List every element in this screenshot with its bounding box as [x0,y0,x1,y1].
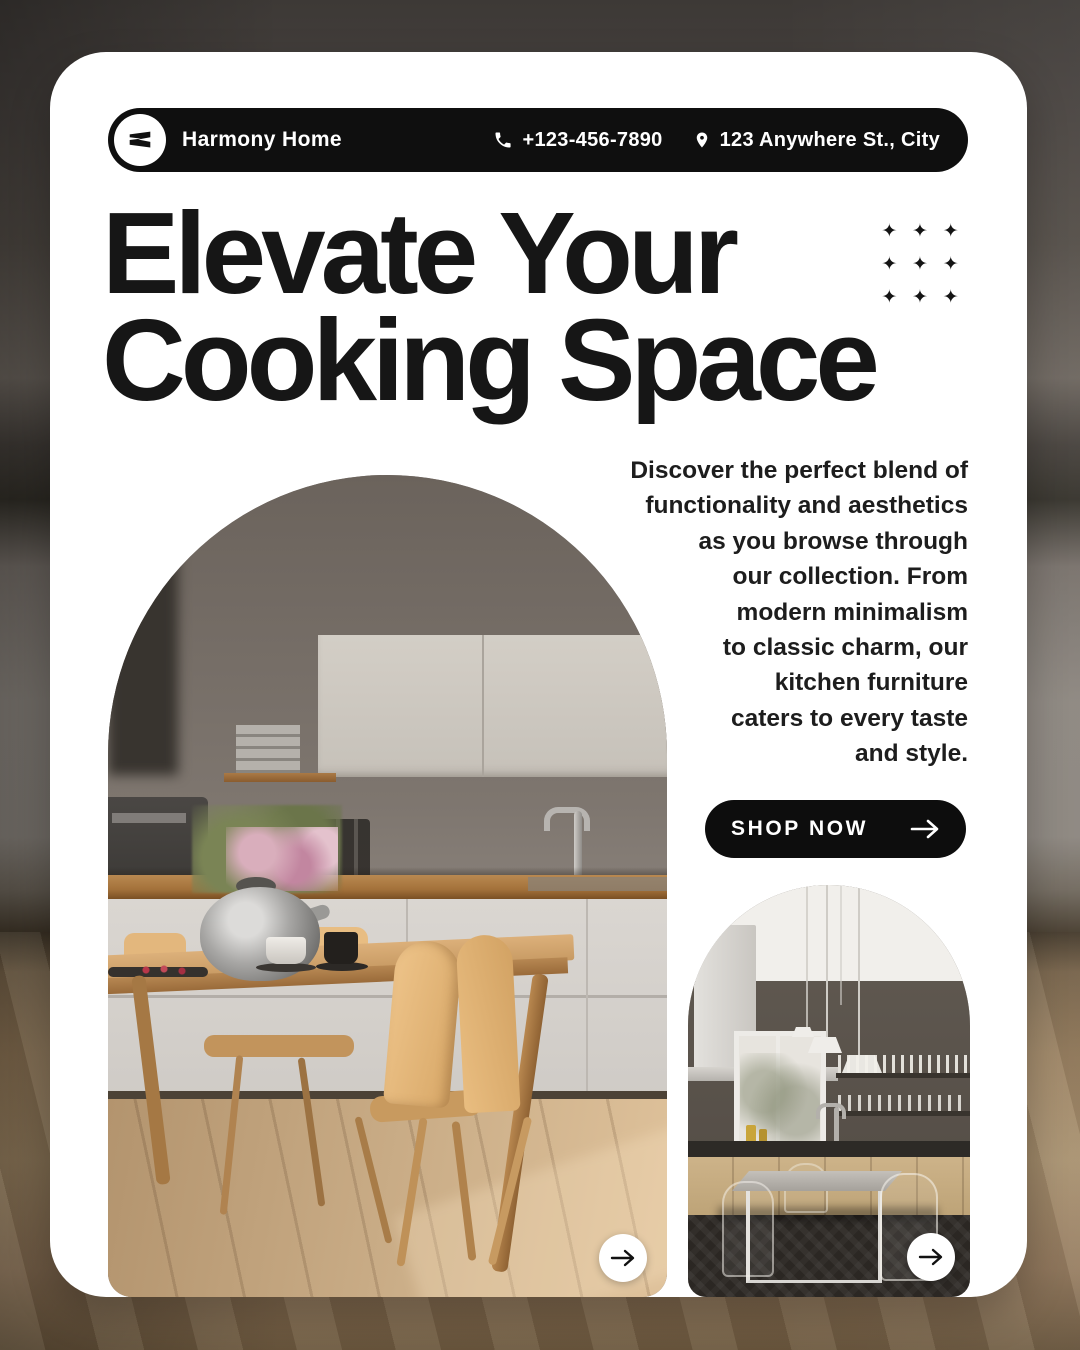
sparkle-icon: ✦ [912,255,928,274]
sparkle-icon: ✦ [943,255,959,274]
phone-icon [493,130,513,150]
photo-cabinet-seam [482,635,484,777]
photo-shelf [836,1111,970,1116]
photo-white-cup [266,937,306,964]
shop-now-label: SHOP NOW [731,817,868,841]
carousel-next-button-right[interactable] [907,1233,955,1281]
photo-coffee-panel [112,813,186,823]
poster-canvas: Harmony Home +123-456-7890 123 Anywhere … [0,0,1080,1350]
shop-now-button[interactable]: SHOP NOW [705,800,966,858]
brand-logo [114,114,166,166]
photo-counter [688,1141,970,1157]
photo-upper-cabinet [318,635,667,777]
address-text: 123 Anywhere St., City [720,129,940,152]
sparkle-icon: ✦ [912,288,928,307]
kitchen-photo-left [108,475,667,1297]
kitchen-photo-right [688,885,970,1297]
photo-chair-back [455,934,520,1114]
address-contact: 123 Anywhere St., City [693,129,940,152]
header-contacts: +123-456-7890 123 Anywhere St., City [493,129,968,152]
location-pin-icon [693,130,711,150]
photo-drawer-seam [586,899,588,1095]
sparkle-icon: ✦ [912,222,928,241]
carousel-next-button-left[interactable] [599,1234,647,1282]
photo-sink [528,877,667,891]
sparkle-icon: ✦ [881,222,897,241]
photo-shelf [836,1073,970,1078]
photo-mid-chair-seat [204,1035,354,1057]
photo-pendant-stem [806,885,808,1031]
sparkle-icon: ✦ [881,255,897,274]
photo-niche [108,535,178,775]
photo-faucet-curve [816,1103,846,1119]
photo-ghost-chair [722,1181,774,1277]
page-title: Elevate Your Cooking Space [102,200,1002,414]
photo-saucer [256,963,316,972]
sparkle-decoration: ✦ ✦ ✦ ✦ ✦ ✦ ✦ ✦ ✦ [874,222,966,307]
photo-pendant-stem [858,885,860,1057]
arrow-right-icon [910,818,940,840]
photo-drawer-seam [108,995,667,998]
photo-pendant-stem [840,885,842,1005]
header-bar: Harmony Home +123-456-7890 123 Anywhere … [108,108,968,172]
sparkle-icon: ✦ [881,288,897,307]
arrow-right-icon [918,1247,944,1267]
photo-pendant-stem [826,885,828,1045]
phone-contact: +123-456-7890 [493,129,662,152]
photo-books [236,725,300,773]
photo-glassware [838,1095,968,1111]
content-card: Harmony Home +123-456-7890 123 Anywhere … [50,52,1027,1297]
arrow-right-icon [610,1248,636,1268]
photo-faucet [834,1107,839,1143]
photo-faucet-curve [544,807,590,831]
photo-berries [134,965,194,975]
sparkle-icon: ✦ [943,222,959,241]
photo-glassware [838,1055,968,1073]
brand-name: Harmony Home [182,128,342,152]
phone-number: +123-456-7890 [522,129,662,152]
photo-black-mug [324,932,358,964]
photo-shelf [224,773,336,782]
sparkle-icon: ✦ [943,288,959,307]
brand-logo-icon [125,125,155,155]
